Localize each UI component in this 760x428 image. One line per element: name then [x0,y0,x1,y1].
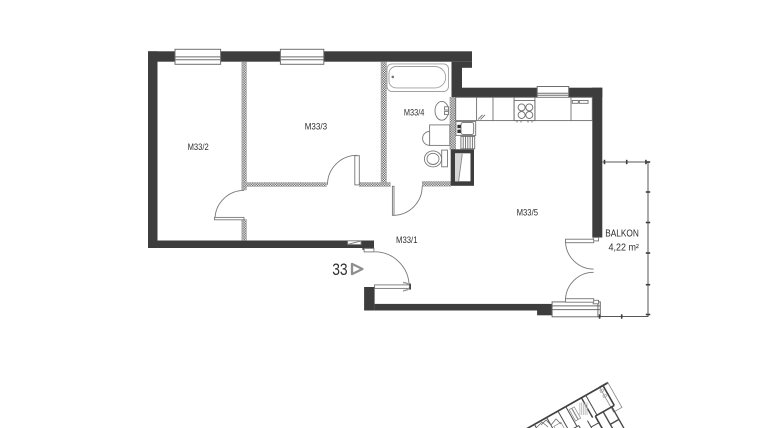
svg-text:M33/5: M33/5 [517,208,538,218]
svg-text:M33/4: M33/4 [404,108,425,118]
svg-text:BALKON: BALKON [605,229,639,240]
svg-text:M33/2: M33/2 [188,142,209,152]
svg-text:M33/1: M33/1 [396,235,418,245]
svg-text:4,22 m²: 4,22 m² [609,243,640,254]
svg-text:M33/3: M33/3 [305,122,327,132]
svg-text:33: 33 [332,260,347,279]
